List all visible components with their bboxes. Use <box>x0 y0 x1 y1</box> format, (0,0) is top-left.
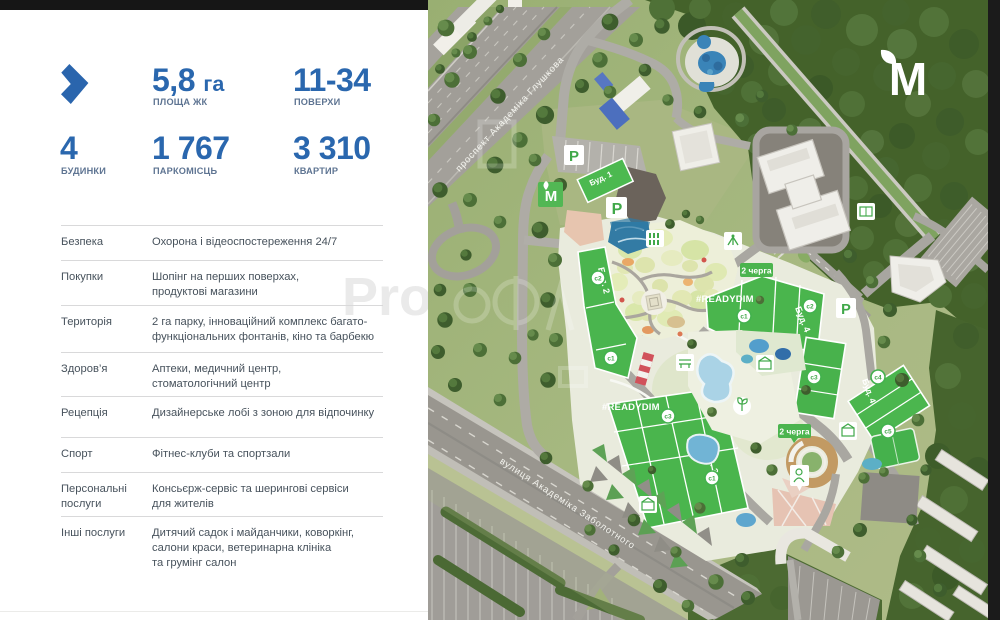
svg-text:2 черга: 2 черга <box>779 427 809 437</box>
svg-text:с2: с2 <box>806 304 814 311</box>
svg-text:с2: с2 <box>594 276 602 283</box>
svg-text:с1: с1 <box>607 356 615 363</box>
svg-text:#READYDIM: #READYDIM <box>602 402 660 413</box>
svg-text:с3: с3 <box>810 375 818 382</box>
svg-text:2 черга: 2 черга <box>741 266 771 276</box>
svg-text:с5: с5 <box>884 429 892 436</box>
svg-text:с1: с1 <box>740 314 748 321</box>
svg-text:P: P <box>841 302 851 318</box>
svg-text:P: P <box>612 201 623 218</box>
svg-text:с1: с1 <box>708 476 716 483</box>
svg-text:#READYDIM: #READYDIM <box>696 294 754 305</box>
svg-text:М: М <box>545 188 558 205</box>
svg-text:P: P <box>569 148 579 165</box>
svg-text:с3: с3 <box>664 414 672 421</box>
svg-text:с4: с4 <box>874 375 882 382</box>
